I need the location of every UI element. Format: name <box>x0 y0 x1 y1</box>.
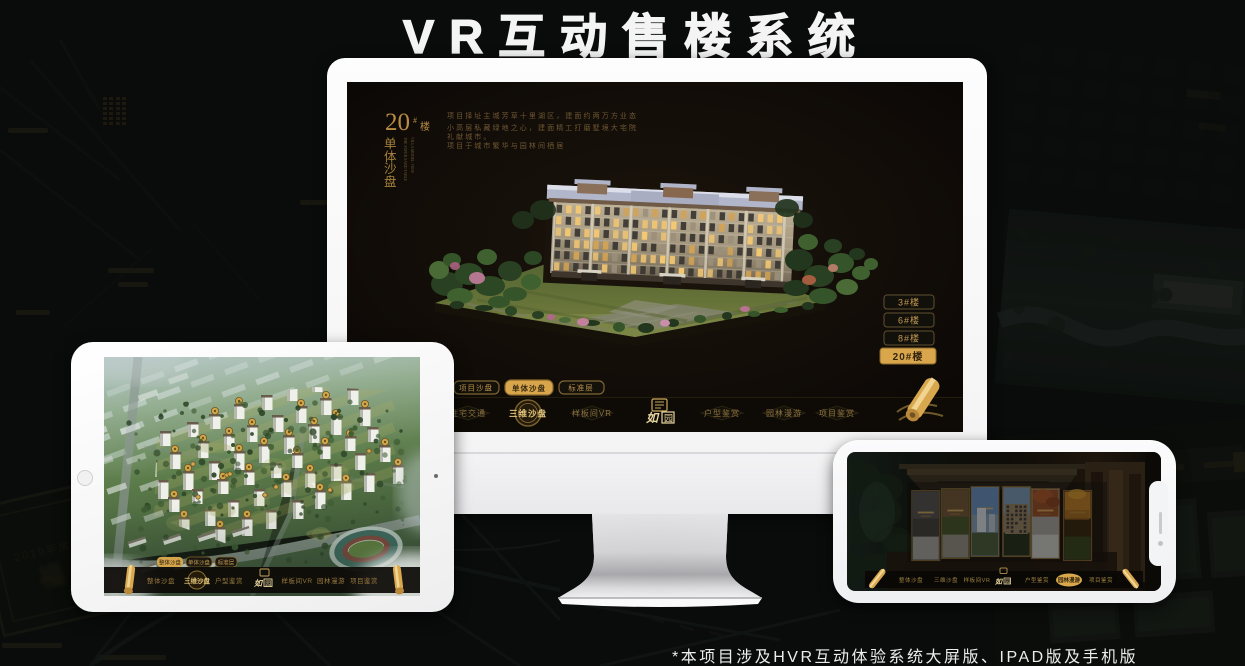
svg-text:单体沙盘: 单体沙盘 <box>512 383 546 393</box>
svg-text:园: 园 <box>265 581 271 588</box>
svg-text:园: 园 <box>664 414 673 424</box>
svg-text:样板间VR: 样板间VR <box>964 576 991 584</box>
svg-text:园: 园 <box>1005 579 1010 585</box>
svg-text:项目沙盘: 项目沙盘 <box>459 383 493 393</box>
svg-text:如: 如 <box>646 411 660 425</box>
svg-text:项目择址主城芳草十里湖区，建面约两万方业态: 项目择址主城芳草十里湖区，建面约两万方业态 <box>447 111 638 120</box>
svg-text:住宅交通: 住宅交通 <box>450 408 486 418</box>
svg-text:三维沙盘: 三维沙盘 <box>934 576 958 584</box>
svg-text:如: 如 <box>995 577 1003 586</box>
svg-text:样板间VR: 样板间VR <box>572 408 612 418</box>
svg-text:三维沙盘: 三维沙盘 <box>509 409 547 419</box>
svg-text:户型鉴赏: 户型鉴赏 <box>704 408 740 418</box>
svg-text:项目鉴赏: 项目鉴赏 <box>1089 576 1113 584</box>
svg-text:单体沙盘: 单体沙盘 <box>188 559 211 567</box>
svg-text:#: # <box>413 116 417 125</box>
svg-text:楼: 楼 <box>420 120 430 133</box>
svg-text:户型鉴赏: 户型鉴赏 <box>1025 576 1049 584</box>
svg-text:礼献城市。: 礼献城市。 <box>447 132 493 141</box>
svg-text:户型鉴赏: 户型鉴赏 <box>215 576 243 585</box>
svg-text:园林漫游: 园林漫游 <box>317 576 345 585</box>
svg-text:标准层: 标准层 <box>218 559 235 567</box>
svg-text:沙: 沙 <box>384 162 397 176</box>
svg-text:整体沙盘: 整体沙盘 <box>159 559 182 567</box>
svg-text:项目鉴赏: 项目鉴赏 <box>819 408 855 418</box>
svg-text:园林漫游: 园林漫游 <box>1058 576 1081 584</box>
svg-text:小高层私藏绿地之心，建面精工打磨墅境大宅院: 小高层私藏绿地之心，建面精工打磨墅境大宅院 <box>447 123 638 132</box>
svg-text:样板间VR: 样板间VR <box>281 576 312 585</box>
svg-text:盘: 盘 <box>384 174 397 189</box>
svg-text:8#楼: 8#楼 <box>898 333 920 344</box>
svg-text:单: 单 <box>384 137 397 151</box>
svg-text:项目于城市繁华与园林间栖居: 项目于城市繁华与园林间栖居 <box>447 141 565 150</box>
svg-text:标准层: 标准层 <box>568 383 594 393</box>
svg-text:整体沙盘: 整体沙盘 <box>899 576 923 584</box>
svg-text:VILLA MODEL VIEW: VILLA MODEL VIEW <box>410 137 414 174</box>
svg-text:6#楼: 6#楼 <box>898 315 920 326</box>
svg-text:THE SUPER SAND TABLE: THE SUPER SAND TABLE <box>403 137 407 182</box>
svg-text:3#楼: 3#楼 <box>898 297 920 308</box>
svg-text:20#楼: 20#楼 <box>893 350 924 363</box>
svg-text:20: 20 <box>385 109 410 136</box>
svg-text:项目鉴赏: 项目鉴赏 <box>350 576 378 585</box>
svg-text:园林漫游: 园林漫游 <box>766 408 802 418</box>
svg-text:三维沙盘: 三维沙盘 <box>184 576 211 585</box>
svg-text:整体沙盘: 整体沙盘 <box>147 576 175 585</box>
